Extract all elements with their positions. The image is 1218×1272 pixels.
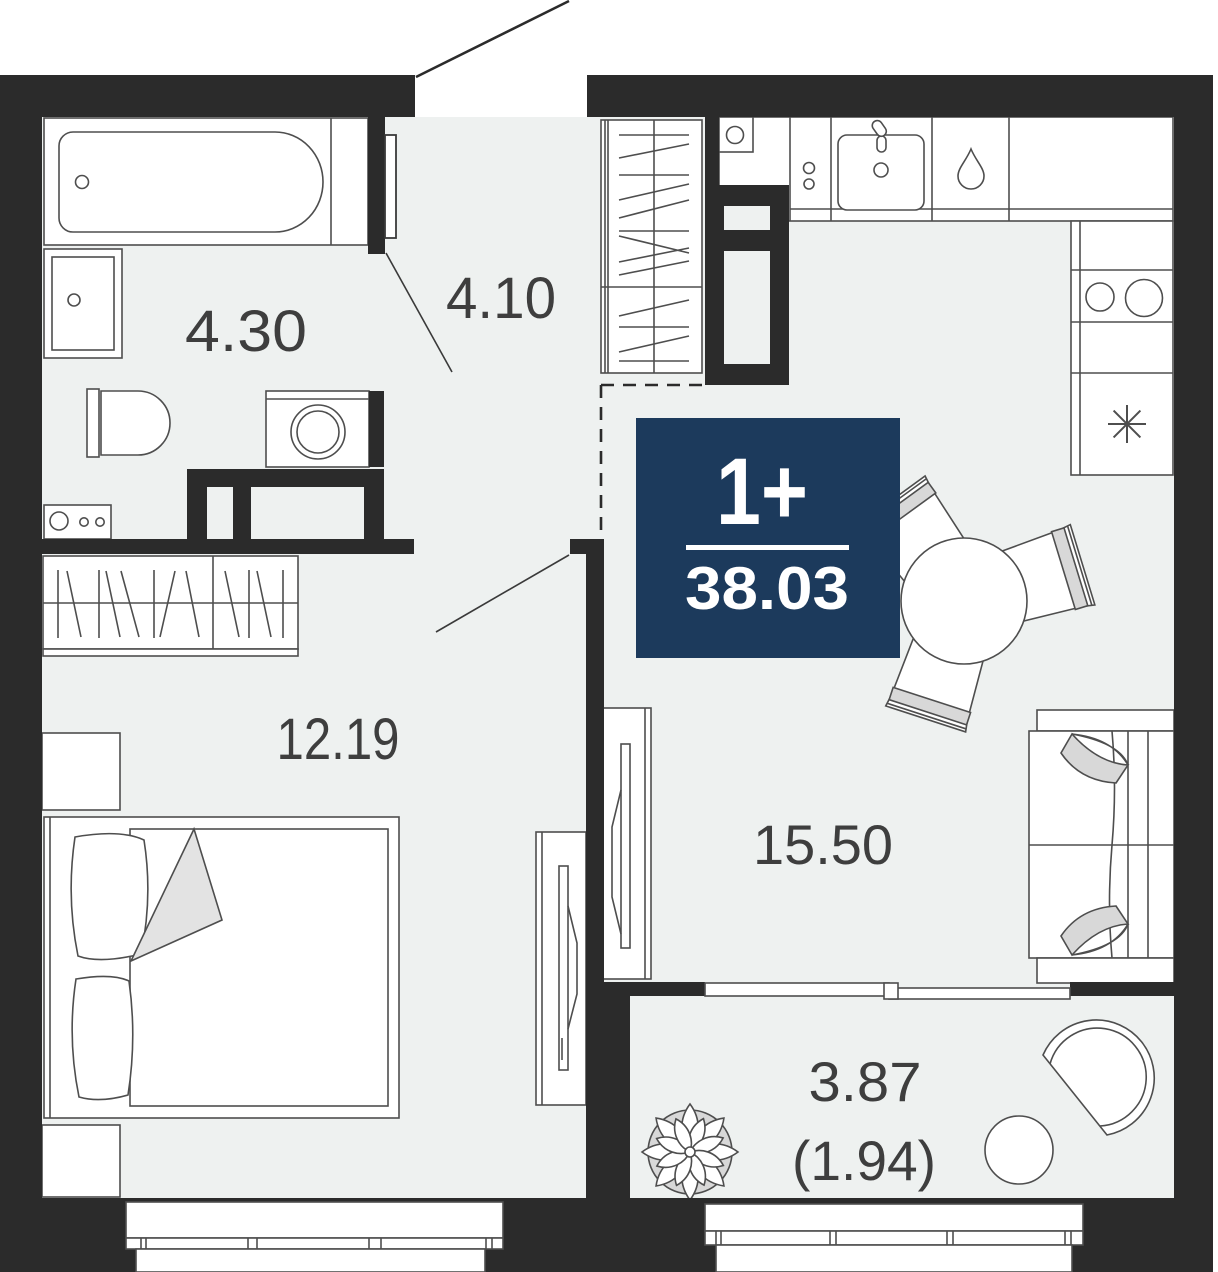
svg-text:1+: 1+ bbox=[716, 439, 808, 545]
svg-text:3.87: 3.87 bbox=[809, 1050, 922, 1113]
svg-text:(1.94): (1.94) bbox=[792, 1129, 936, 1192]
svg-text:4.30: 4.30 bbox=[185, 299, 307, 364]
svg-text:12.19: 12.19 bbox=[277, 707, 400, 772]
svg-text:38.03: 38.03 bbox=[685, 555, 849, 622]
svg-text:15.50: 15.50 bbox=[753, 813, 893, 876]
svg-text:4.10: 4.10 bbox=[446, 266, 556, 331]
